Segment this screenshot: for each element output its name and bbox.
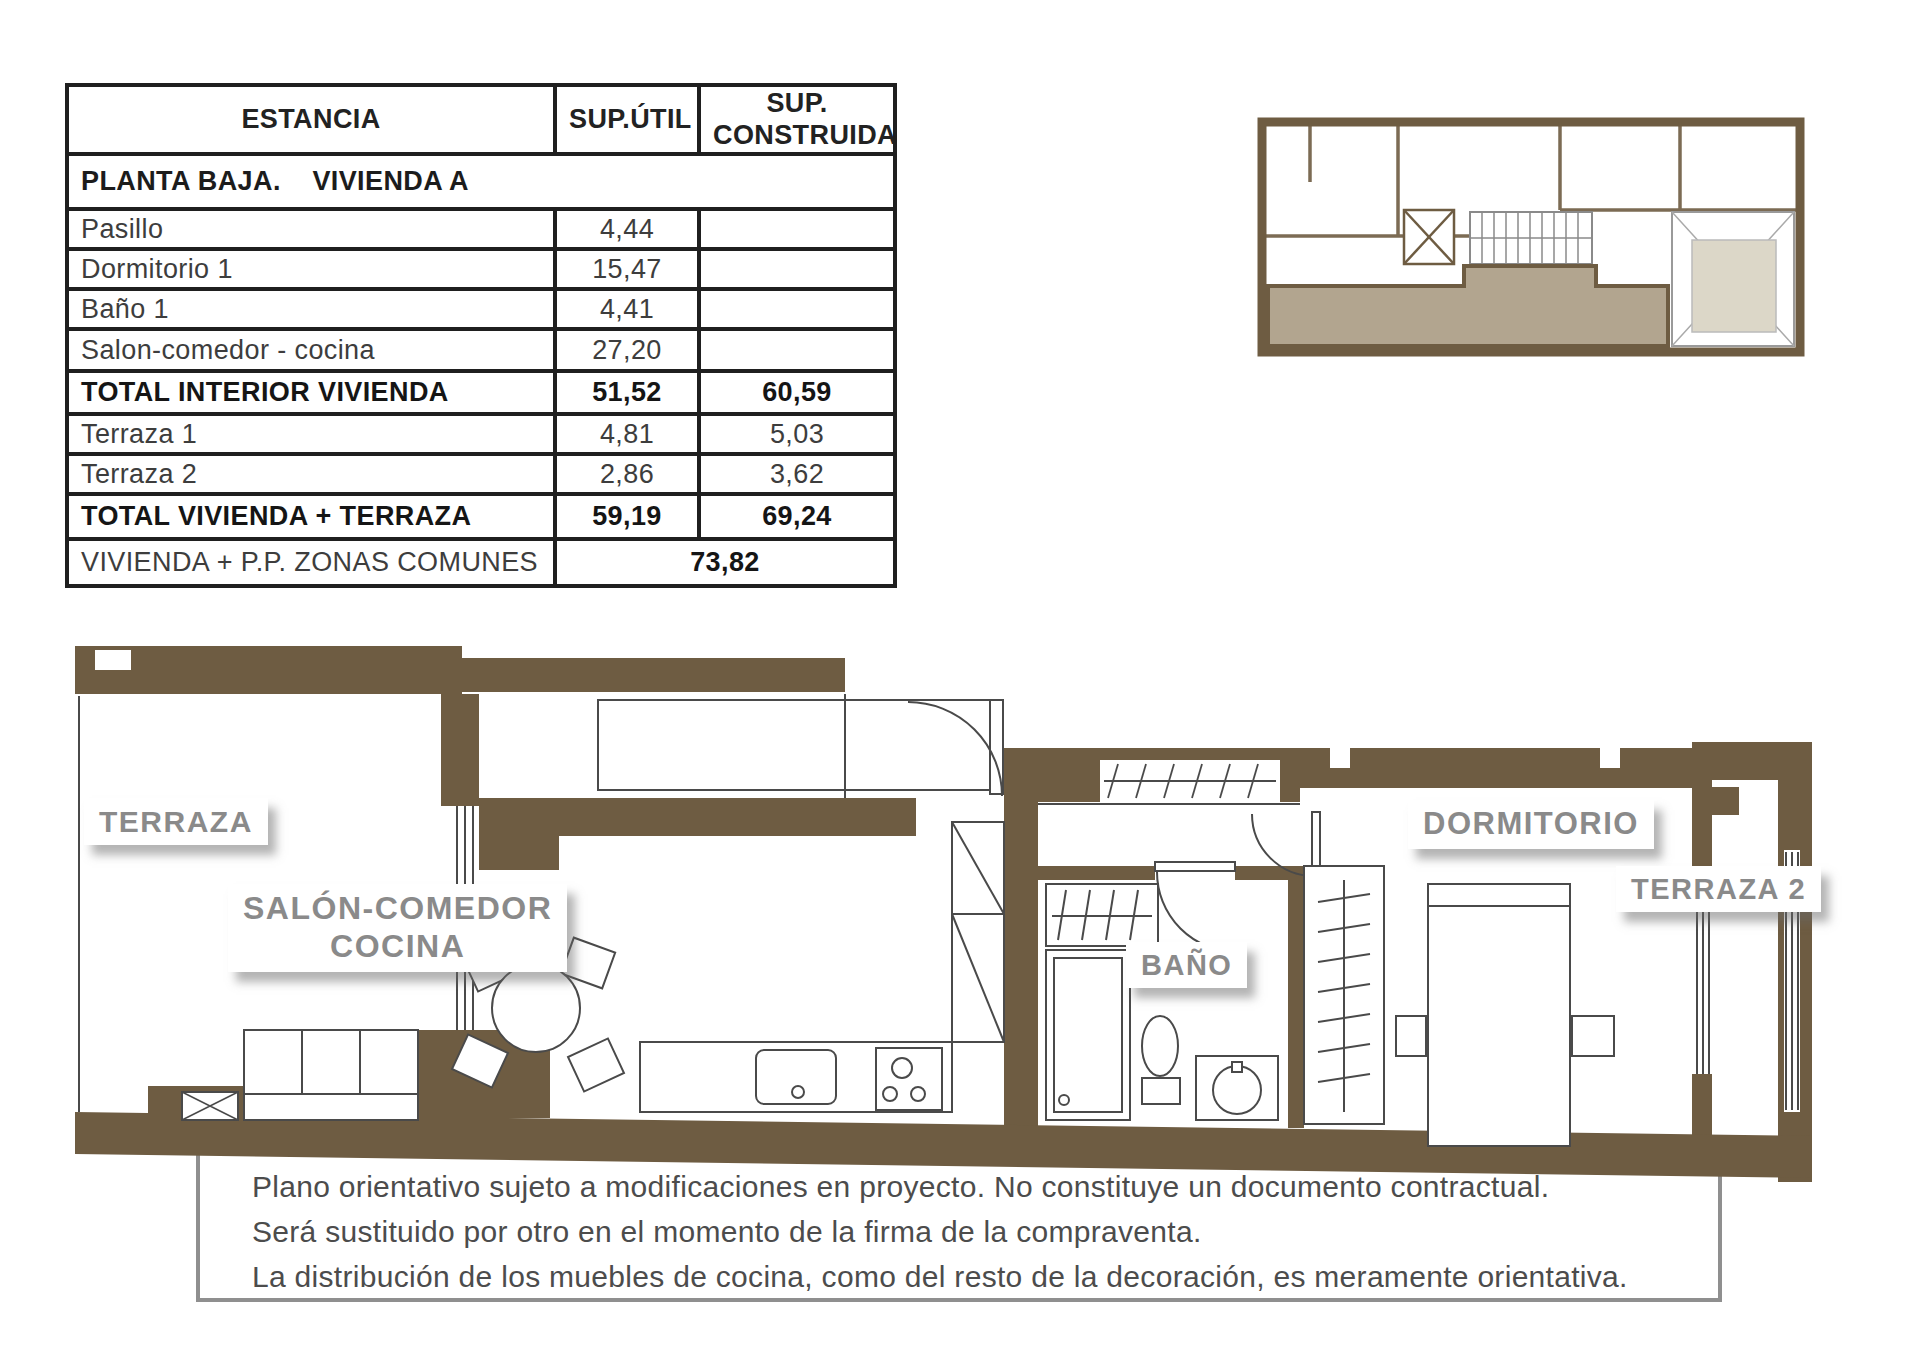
row-name: TOTAL VIVIENDA + TERRAZA (67, 494, 555, 539)
row-util: 4,41 (555, 289, 699, 329)
kitchen-counter-icon (640, 822, 1004, 1112)
bathroom-closet-icon (1046, 884, 1158, 946)
disclaimer-line-2: Será sustituido por otro en el momento d… (252, 1209, 1718, 1254)
row-construida: 60,59 (699, 371, 895, 414)
row-name: Dormitorio 1 (67, 249, 555, 289)
label-bano: BAÑO (1126, 942, 1247, 988)
shower-icon (1046, 950, 1130, 1120)
section-title: PLANTA BAJA. VIVIENDA A (67, 154, 895, 209)
vent-box-icon (182, 1092, 238, 1120)
table-row: Salon-comedor - cocina 27,20 (67, 329, 895, 371)
header-sup-util: SUP.ÚTIL (555, 85, 699, 154)
row-util: 27,20 (555, 329, 699, 371)
table-row: Pasillo 4,44 (67, 209, 895, 249)
table-section-row: PLANTA BAJA. VIVIENDA A (67, 154, 895, 209)
table-footer-row: VIVIENDA + P.P. ZONAS COMUNES 73,82 (67, 539, 895, 586)
row-name: Terraza 2 (67, 454, 555, 494)
row-name: Terraza 1 (67, 414, 555, 454)
header-estancia: ESTANCIA (67, 85, 555, 154)
footer-name: VIVIENDA + P.P. ZONAS COMUNES (67, 539, 555, 586)
wardrobe-icon (1304, 866, 1384, 1124)
row-construida (699, 249, 895, 289)
table-row: Baño 1 4,41 (67, 289, 895, 329)
bathroom-door-icon (1155, 862, 1237, 952)
table-row-total-interior: TOTAL INTERIOR VIVIENDA 51,52 60,59 (67, 371, 895, 414)
toilet-icon (1142, 1016, 1180, 1104)
label-salon-line1: SALÓN-COMEDOR (243, 890, 552, 928)
table-row: Terraza 1 4,81 5,03 (67, 414, 895, 454)
entrance-door-icon (908, 700, 1003, 796)
row-util: 2,86 (555, 454, 699, 494)
label-salon-comedor-cocina: SALÓN-COMEDOR COCINA (228, 884, 567, 972)
table-row-total-vivienda: TOTAL VIVIENDA + TERRAZA 59,19 69,24 (67, 494, 895, 539)
row-construida: 3,62 (699, 454, 895, 494)
label-salon-line2: COCINA (243, 928, 552, 966)
table-header-row: ESTANCIA SUP.ÚTIL SUP. CONSTRUIDA (67, 85, 895, 154)
disclaimer-line-3: La distribución de los muebles de cocina… (252, 1254, 1718, 1299)
patio-outline (598, 700, 1002, 790)
row-construida: 5,03 (699, 414, 895, 454)
row-name: Pasillo (67, 209, 555, 249)
row-construida (699, 289, 895, 329)
bathroom-sink-icon (1196, 1056, 1278, 1120)
row-name: Baño 1 (67, 289, 555, 329)
row-name: Salon-comedor - cocina (67, 329, 555, 371)
building-key-plan (1250, 105, 1810, 365)
elevator-icon (1404, 210, 1454, 264)
row-util: 51,52 (555, 371, 699, 414)
row-util: 59,19 (555, 494, 699, 539)
row-construida (699, 209, 895, 249)
label-terraza-2: TERRAZA 2 (1616, 866, 1821, 912)
label-dormitorio: DORMITORIO (1408, 800, 1654, 849)
row-util: 4,44 (555, 209, 699, 249)
table-row: Dormitorio 1 15,47 (67, 249, 895, 289)
bed-icon (1396, 884, 1614, 1146)
header-sup-construida: SUP. CONSTRUIDA (699, 85, 895, 154)
area-table: ESTANCIA SUP.ÚTIL SUP. CONSTRUIDA PLANTA… (65, 83, 897, 588)
patio-icon (1672, 212, 1794, 346)
sofa-icon (244, 1030, 418, 1120)
label-terraza: TERRAZA (84, 798, 268, 845)
table-row: Terraza 2 2,86 3,62 (67, 454, 895, 494)
footer-value: 73,82 (555, 539, 895, 586)
row-construida (699, 329, 895, 371)
stairs-icon (1470, 212, 1592, 264)
row-util: 15,47 (555, 249, 699, 289)
row-util: 4,81 (555, 414, 699, 454)
row-name: TOTAL INTERIOR VIVIENDA (67, 371, 555, 414)
row-construida: 69,24 (699, 494, 895, 539)
